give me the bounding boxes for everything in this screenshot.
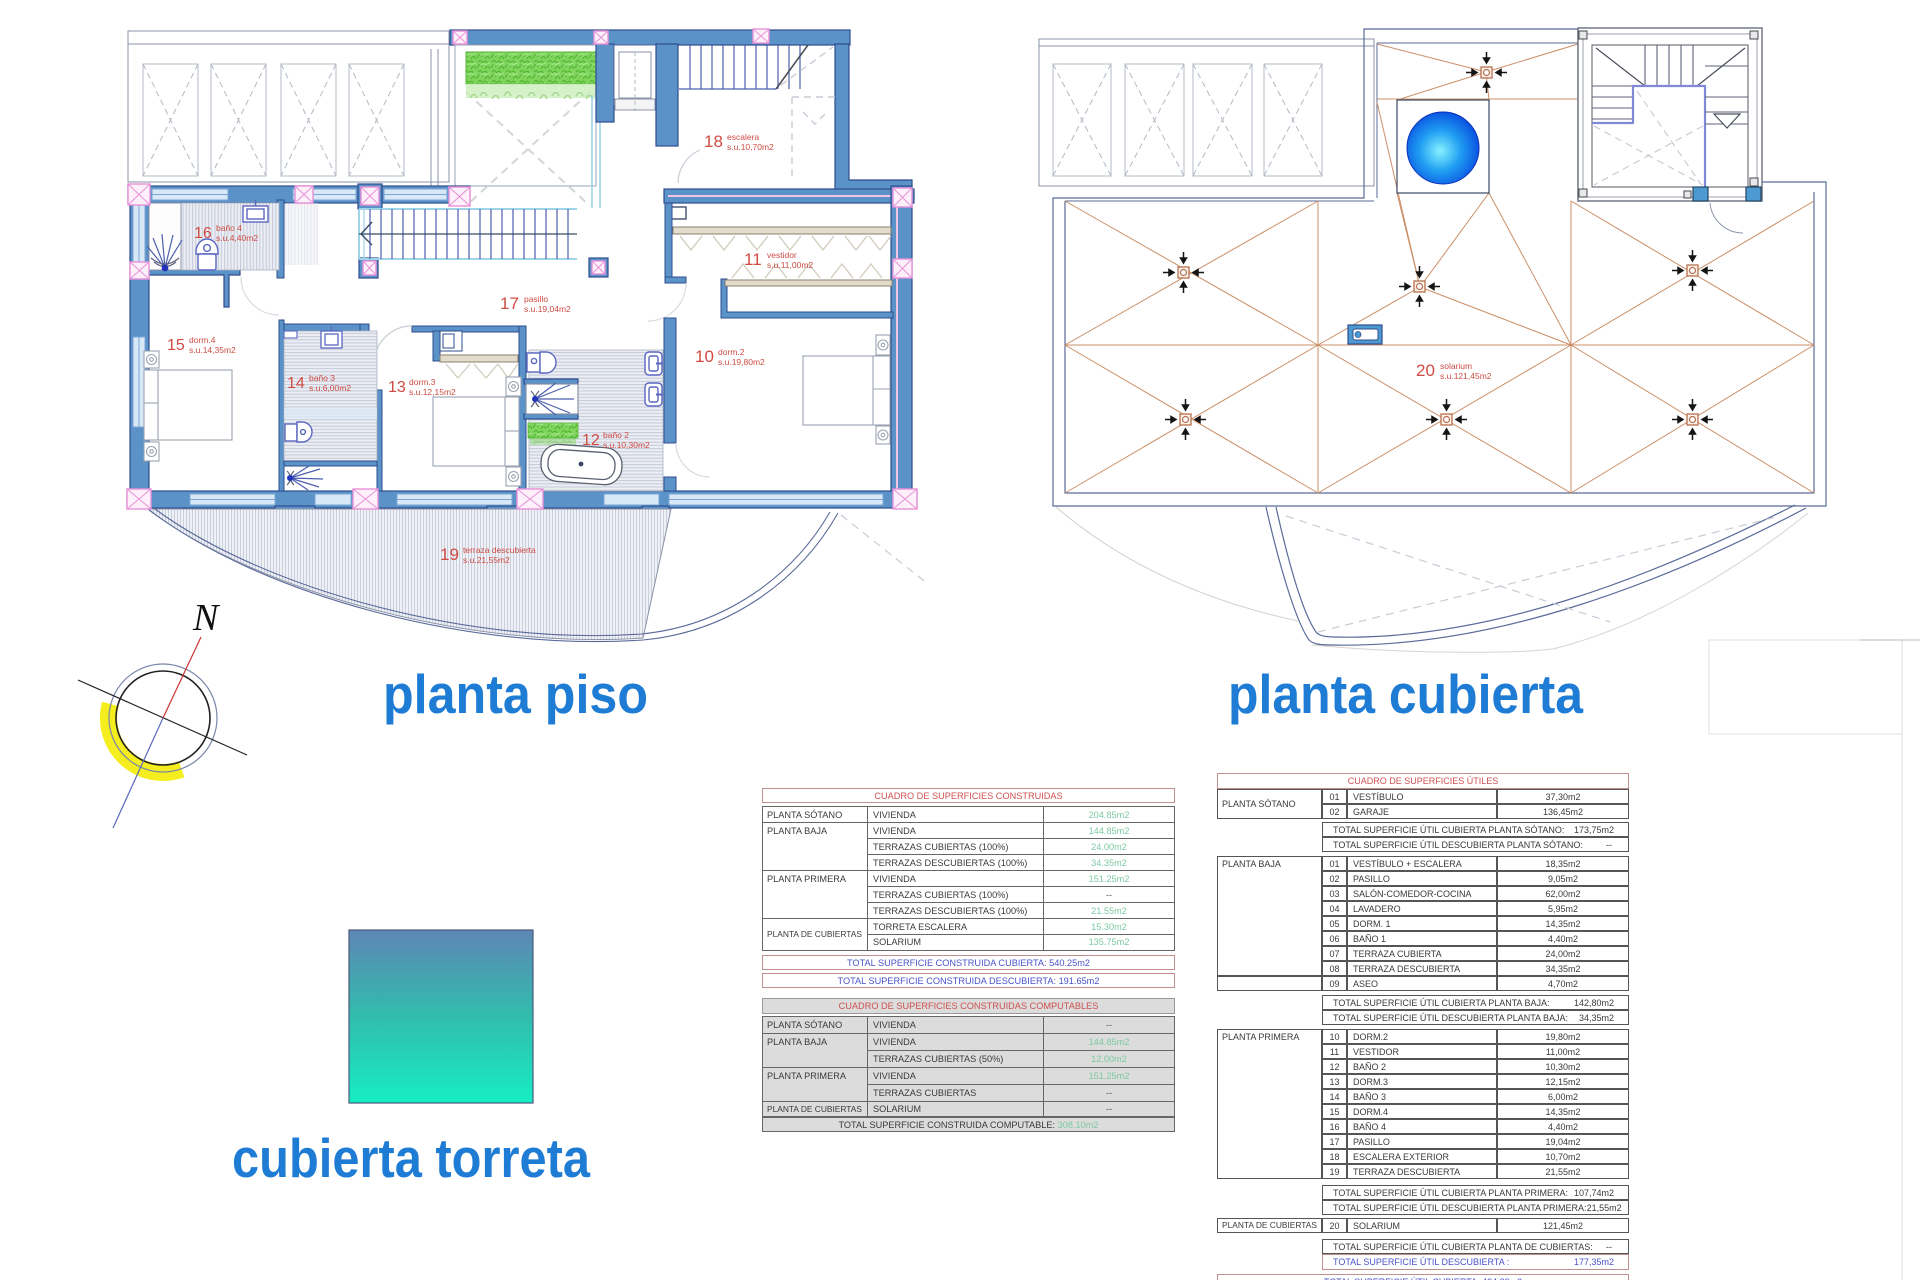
svg-text:solarium: solarium (1440, 361, 1472, 371)
svg-text:escalera: escalera (727, 132, 759, 142)
svg-text:terraza descubierta: terraza descubierta (463, 545, 536, 555)
svg-text:baño 2: baño 2 (603, 430, 629, 440)
svg-text:s.u.11,00m2: s.u.11,00m2 (767, 260, 813, 270)
svg-text:planta cubierta: planta cubierta (1228, 663, 1583, 725)
svg-text:19: 19 (440, 545, 459, 564)
svg-text:15: 15 (167, 337, 185, 354)
svg-text:11: 11 (744, 250, 762, 269)
svg-text:s.u.6,00m2: s.u.6,00m2 (309, 383, 351, 393)
svg-text:s.u.121,45m2: s.u.121,45m2 (1440, 371, 1492, 381)
svg-text:dorm.2: dorm.2 (718, 347, 745, 357)
svg-text:cubierta torreta: cubierta torreta (232, 1127, 590, 1189)
svg-text:10: 10 (695, 347, 714, 366)
svg-text:13: 13 (388, 379, 406, 396)
svg-text:baño 3: baño 3 (309, 373, 335, 383)
svg-text:baño 4: baño 4 (216, 223, 242, 233)
svg-text:16: 16 (194, 225, 212, 242)
svg-text:20: 20 (1416, 361, 1435, 380)
svg-text:vestidor: vestidor (767, 250, 797, 260)
svg-text:s.u.19,04m2: s.u.19,04m2 (524, 304, 571, 314)
svg-text:s.u.12,15m2: s.u.12,15m2 (409, 387, 456, 397)
svg-text:s.u.10,70m2: s.u.10,70m2 (727, 142, 774, 152)
svg-text:18: 18 (704, 132, 723, 151)
svg-text:17: 17 (500, 294, 519, 313)
svg-text:s.u.19,80m2: s.u.19,80m2 (718, 357, 765, 367)
svg-text:pasillo: pasillo (524, 294, 548, 304)
svg-text:s.u.10,30m2: s.u.10,30m2 (603, 440, 650, 450)
svg-text:s.u.14,35m2: s.u.14,35m2 (189, 345, 236, 355)
svg-text:dorm.3: dorm.3 (409, 377, 436, 387)
svg-text:N: N (192, 597, 221, 639)
svg-text:12: 12 (582, 432, 600, 449)
svg-text:dorm.4: dorm.4 (189, 335, 216, 345)
svg-text:s.u.21,55m2: s.u.21,55m2 (463, 555, 510, 565)
svg-text:planta piso: planta piso (383, 663, 648, 725)
svg-text:14: 14 (287, 375, 305, 392)
svg-text:s.u.4,40m2: s.u.4,40m2 (216, 233, 258, 243)
